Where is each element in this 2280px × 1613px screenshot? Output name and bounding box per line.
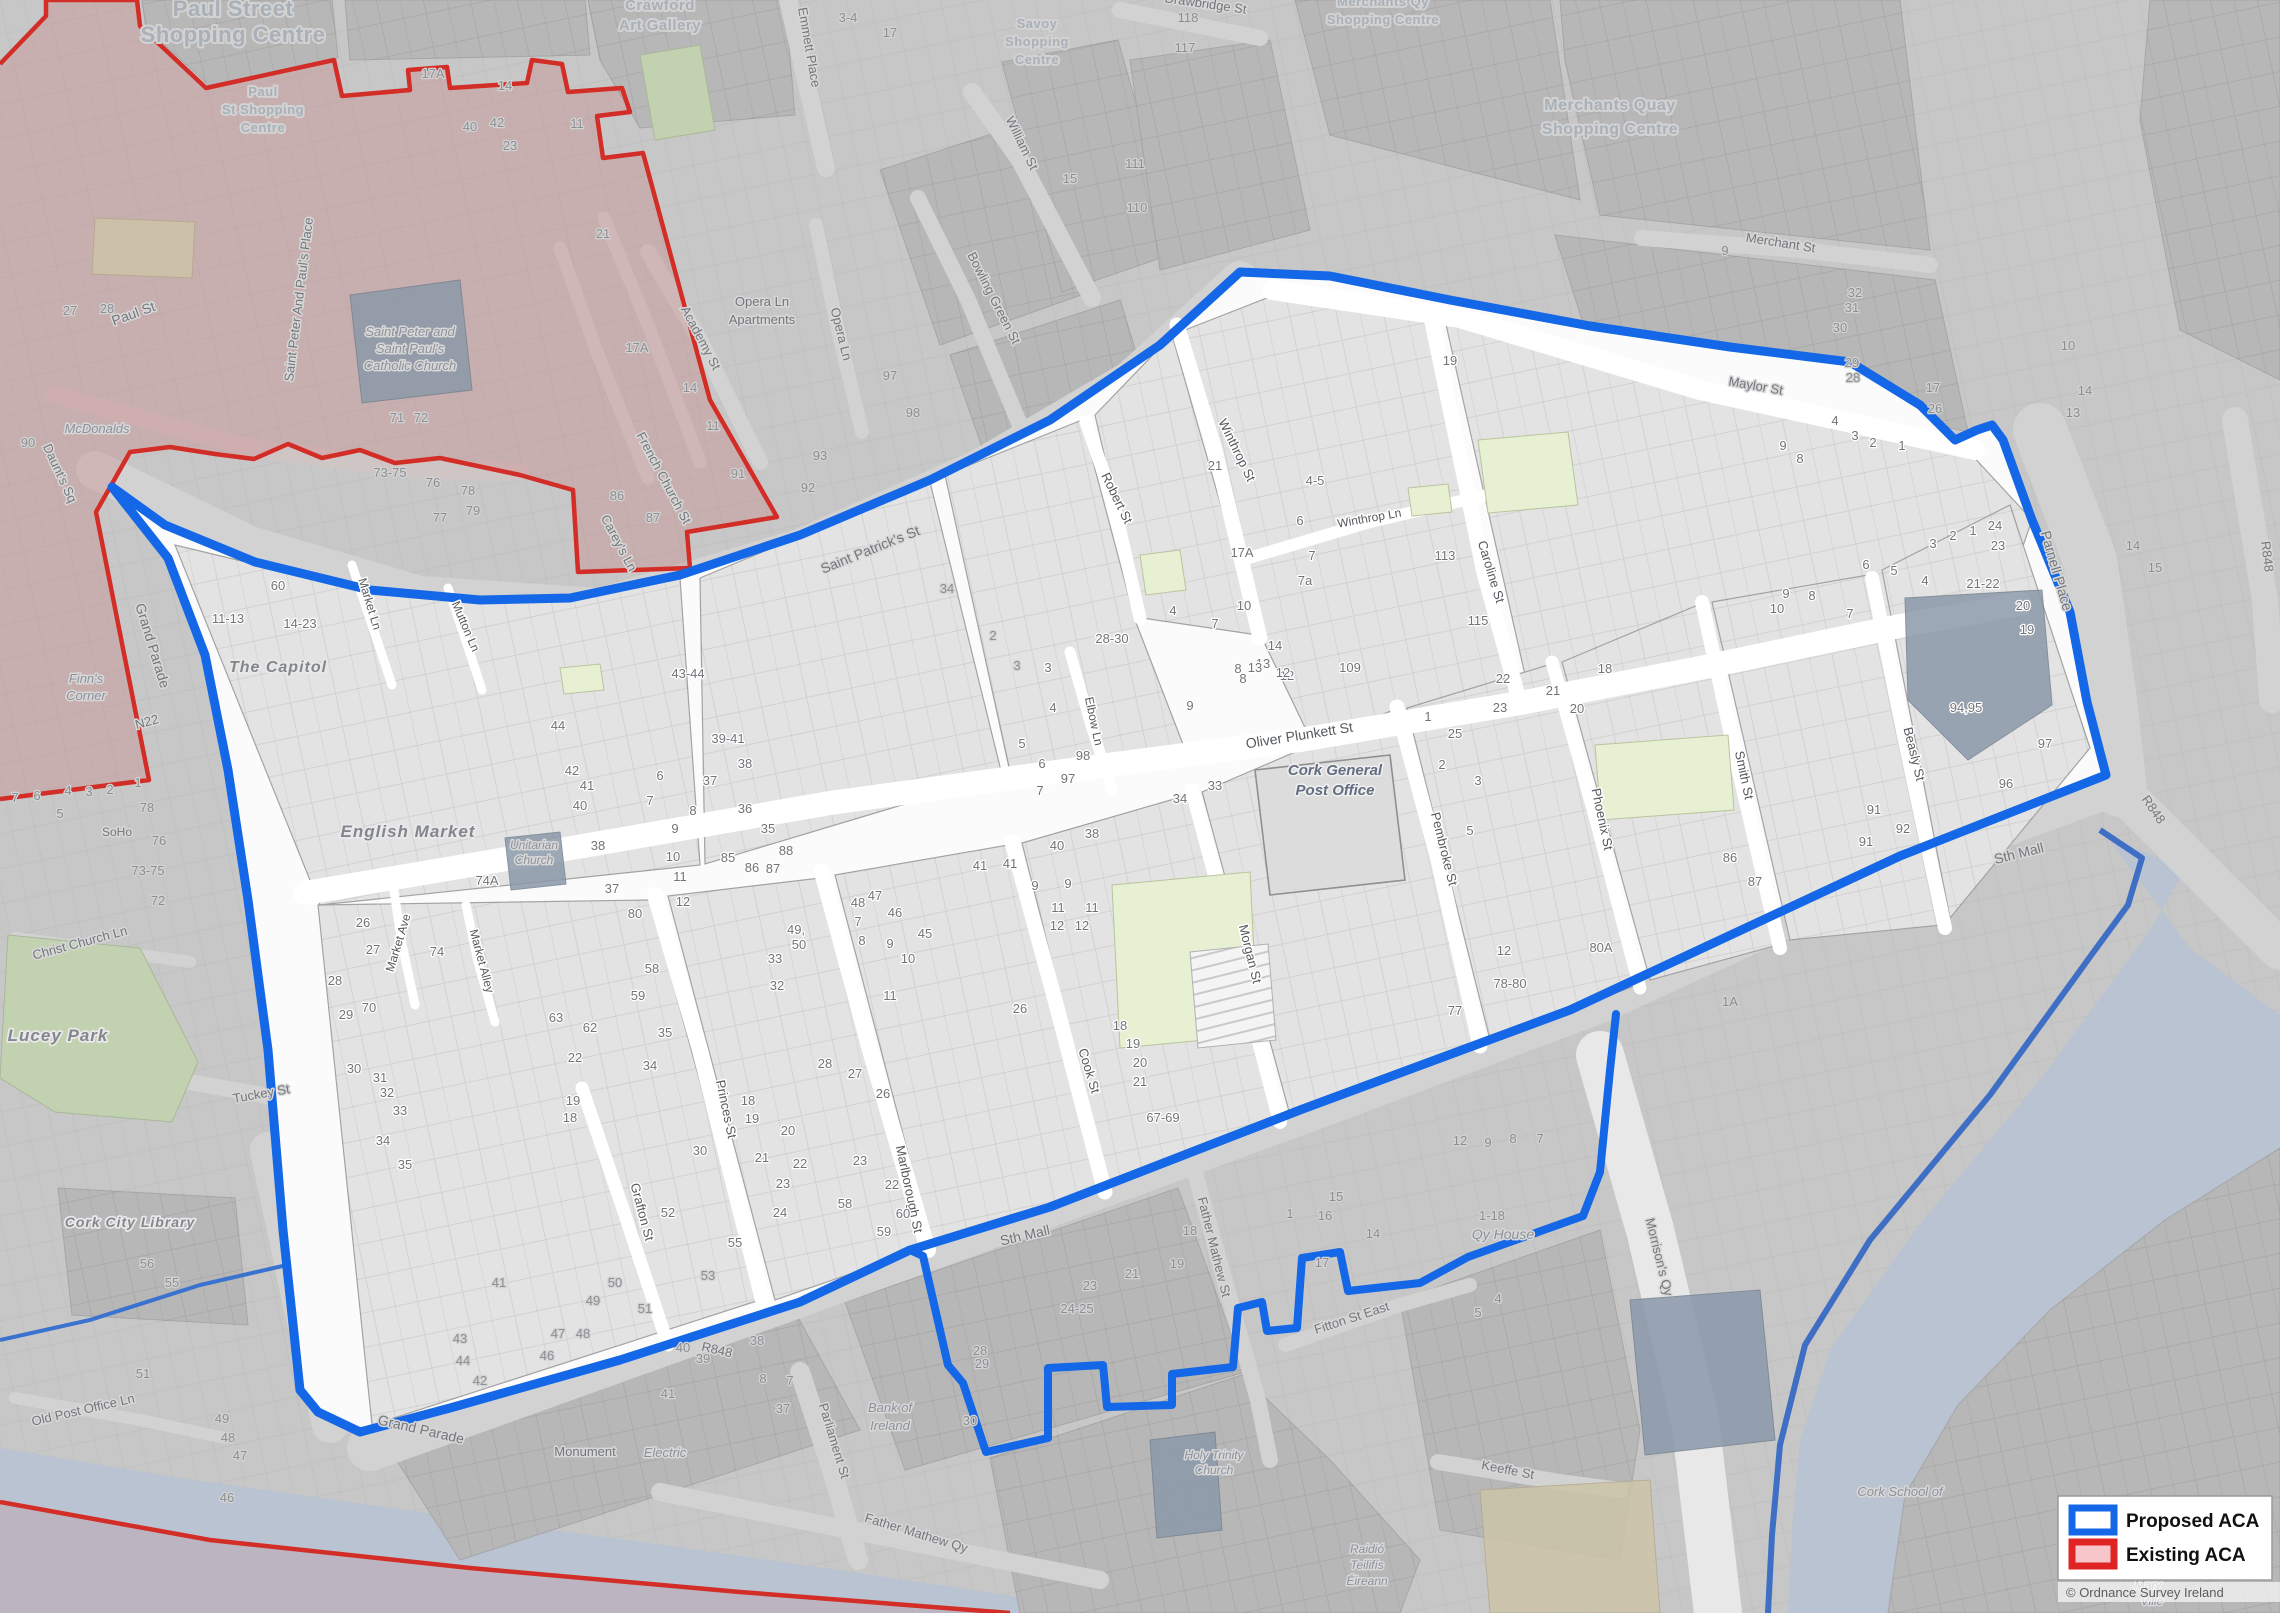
building-number: 11 (1051, 900, 1065, 915)
building-number: 24 (773, 1205, 787, 1220)
building-number: 67-69 (1146, 1110, 1179, 1125)
building-number: 74A (475, 873, 498, 888)
building-number: 1-18 (1479, 1208, 1505, 1223)
building-number: 50 (608, 1275, 622, 1290)
building-number: 19 (745, 1111, 759, 1126)
building-number: 38 (1085, 826, 1099, 841)
building-number: 87 (766, 861, 780, 876)
building-number: 6 (33, 788, 40, 803)
building-number: 22 (885, 1177, 899, 1192)
legend-label-proposed-aca: Proposed ACA (2126, 1511, 2260, 1532)
building-number: 11 (570, 116, 584, 131)
area-label: Shopping Centre (1327, 12, 1439, 27)
place-label: Teilifís (1350, 1558, 1384, 1572)
building-number: 21 (1546, 683, 1560, 698)
street-label: SoHo (102, 825, 132, 839)
building-number: 43-44 (671, 666, 704, 681)
building-number: 42 (490, 115, 504, 130)
building-number: 29 (1845, 355, 1859, 370)
building-number: 20 (1570, 701, 1584, 716)
building-number: 6 (656, 768, 663, 783)
building-number: 27 (366, 942, 380, 957)
building-number: 55 (165, 1275, 179, 1290)
building-number: 8 (1796, 451, 1803, 466)
building-number: 31 (1845, 300, 1859, 315)
place-label: Church (1195, 1463, 1234, 1477)
building-number: 19 (1170, 1256, 1184, 1271)
place-label: Cork City Library (65, 1214, 196, 1230)
building-number: 39-41 (711, 731, 744, 746)
building-number: 10 (2061, 338, 2075, 353)
building-number: 30 (693, 1143, 707, 1158)
building-number: 9 (1779, 438, 1786, 453)
building-number: 49 (215, 1411, 229, 1426)
building-number: 8 (1808, 588, 1815, 603)
building-number: 6 (1862, 557, 1869, 572)
building-number: 33 (1208, 778, 1222, 793)
building-number: 22 (568, 1050, 582, 1065)
building-number: 4 (1169, 603, 1176, 618)
building-number: 58 (645, 961, 659, 976)
building-number: 17A (1230, 545, 1253, 560)
building-number: 24-25 (1060, 1301, 1093, 1316)
area-label: Art Gallery (619, 17, 701, 34)
building-number: 76 (426, 475, 440, 490)
building-number: 60 (896, 1206, 910, 1221)
building-number: 6 (1038, 756, 1045, 771)
building-number: 97 (883, 368, 897, 383)
building-number: 29 (975, 1356, 989, 1371)
building-number: 41 (580, 778, 594, 793)
building-number: 17 (1315, 1255, 1329, 1270)
building-number: 2 (989, 628, 996, 643)
building-number: 28 (1846, 370, 1860, 385)
building-number: 5 (1466, 823, 1473, 838)
building-number: 43 (453, 1331, 467, 1346)
building-number: 88 (779, 843, 793, 858)
building-number: 25 (1448, 726, 1462, 741)
building-number: 2 (1869, 435, 1876, 450)
building-number: 77 (1448, 1003, 1462, 1018)
building-number: 21 (1125, 1266, 1139, 1281)
building-number: 24 (1988, 518, 2002, 533)
building-number: 50 (792, 937, 806, 952)
building-number: 10 (901, 951, 915, 966)
building-number: 77 (433, 510, 447, 525)
building-number: 14 (2126, 538, 2140, 553)
building-number: 9 (1064, 876, 1071, 891)
building-number: 1A (1722, 994, 1738, 1009)
building-number: 38 (591, 838, 605, 853)
building-number: 1 (1286, 1206, 1293, 1221)
building-number: 86 (1723, 850, 1737, 865)
building-number: 15 (1329, 1189, 1343, 1204)
building-number: 78-80 (1493, 976, 1526, 991)
building-number: 8 (759, 1371, 766, 1386)
building-number: 14 (498, 78, 512, 93)
building-number: 27 (848, 1066, 862, 1081)
building-number: 14 (1366, 1226, 1380, 1241)
building-number: 44 (551, 718, 565, 733)
building-number: 17A (421, 66, 444, 81)
building-number: 12 (1075, 918, 1089, 933)
building-number: 1 (134, 775, 141, 790)
building-number: 18 (741, 1093, 755, 1108)
building-number: 33 (768, 951, 782, 966)
building-number: 63 (549, 1010, 563, 1025)
area-label: Centre (1015, 52, 1059, 67)
legend-swatch-existing (2072, 1542, 2114, 1566)
building-number: 47 (551, 1326, 565, 1341)
building-number: 9 (886, 936, 893, 951)
building-number: 109 (1339, 660, 1361, 675)
building-number: 16 (1318, 1208, 1332, 1223)
place-label: English Market (341, 822, 476, 841)
building-number: 30 (963, 1413, 977, 1428)
building-number: 14 (683, 380, 697, 395)
building-number: 19 (1126, 1036, 1140, 1051)
building-number: 55 (728, 1235, 742, 1250)
building-number: 42 (473, 1373, 487, 1388)
building-number: 94,95 (1950, 700, 1983, 715)
building-number: 49, (787, 922, 805, 937)
building-number: 62 (583, 1020, 597, 1035)
building-number: 53 (701, 1268, 715, 1283)
building-number: 23 (776, 1176, 790, 1191)
building-number: 10 (1237, 598, 1251, 613)
building-number: 3 (1044, 660, 1051, 675)
building-number: 4-5 (1306, 473, 1325, 488)
building-number: 72 (414, 410, 428, 425)
building-number: 48 (851, 895, 865, 910)
building-number: 85 (721, 850, 735, 865)
building-number: 4 (1049, 700, 1056, 715)
building-number: 90 (21, 435, 35, 450)
building-number: 7 (786, 1373, 793, 1388)
building-number: 34 (940, 581, 954, 596)
area-label: Crawford (625, 0, 695, 14)
building-number: 11 (1085, 900, 1099, 915)
building-number: 32 (770, 978, 784, 993)
building-number: 92 (801, 480, 815, 495)
building-number: 70 (362, 1000, 376, 1015)
building-number: 20 (1133, 1055, 1147, 1070)
building-number: 46 (220, 1490, 234, 1505)
area-label: Shopping Centre (141, 22, 326, 47)
building-number: 92 (1896, 821, 1910, 836)
place-label: Church (515, 853, 554, 867)
area-label: Shopping (1005, 34, 1069, 49)
building-number: 19 (566, 1093, 580, 1108)
place-label: The Capitol (229, 659, 327, 676)
building-number: 38 (738, 756, 752, 771)
building-number: 111 (1125, 156, 1145, 171)
building-number: 14-23 (283, 616, 316, 631)
building-number: 46 (888, 905, 902, 920)
building-number: 117 (1175, 40, 1196, 55)
building-number: 11 (883, 988, 897, 1003)
area-label: Savoy (1017, 16, 1058, 31)
building-number: 4 (1831, 413, 1838, 428)
building-number: 14 (2078, 383, 2092, 398)
area-label: Shopping Centre (1542, 121, 1678, 138)
building-number: 35 (398, 1157, 412, 1172)
building-number: 12 (676, 894, 690, 909)
building-number: 7 (1036, 783, 1043, 798)
building-number: 1 (1424, 709, 1431, 724)
building-number: 98 (906, 405, 920, 420)
building-number: 113 (1435, 548, 1456, 563)
building-number: 20 (781, 1123, 795, 1138)
building-number: 46 (540, 1348, 554, 1363)
building-number: 18 (1598, 661, 1612, 676)
building-number: 58 (838, 1196, 852, 1211)
building-number: 21 (755, 1150, 769, 1165)
building-number: 44 (456, 1353, 470, 1368)
map-viewport: Paul StreetShopping CentrePaulSt Shoppin… (0, 0, 2280, 1613)
building-number: 71 (390, 410, 404, 425)
place-label: Saint Paul's (376, 341, 445, 356)
building-number: 28 (328, 973, 342, 988)
place-label: Catholic Church (364, 358, 457, 373)
building-number: 34 (1173, 791, 1187, 806)
building-number: 78 (140, 800, 154, 815)
building-number: 38 (750, 1333, 764, 1348)
building-number: 45 (918, 926, 932, 941)
building-number: 31 (373, 1070, 387, 1085)
building-number: 52 (661, 1205, 675, 1220)
building-number: 3-4 (839, 10, 858, 25)
building-number: 56 (140, 1256, 154, 1271)
building-number: 3 (1929, 536, 1936, 551)
building-number: 86 (745, 860, 759, 875)
building-number: 76 (152, 833, 166, 848)
building-number: 21 (596, 226, 610, 241)
building-number: 30 (1833, 320, 1847, 335)
building-number: 29 (339, 1007, 353, 1022)
building-number: 118 (1178, 10, 1199, 25)
building-number: 8 (1509, 1131, 1516, 1146)
building-number: 23 (1083, 1278, 1097, 1293)
area-label: Centre (241, 120, 285, 135)
building-number: 37 (703, 773, 717, 788)
building-number: 51 (136, 1366, 150, 1381)
building-number: 9 (1031, 878, 1038, 893)
building-number: 35 (761, 821, 775, 836)
building-number: 59 (877, 1224, 891, 1239)
building-number: 8 (858, 933, 865, 948)
building-number: 7 (1308, 548, 1315, 563)
street-label: Opera Ln (735, 294, 789, 309)
building-number: 11 (673, 869, 687, 884)
building-number: 2 (106, 782, 113, 797)
building-number: 23 (1991, 538, 2005, 553)
building-number: 8 (1234, 661, 1241, 676)
place-label: Éireann (1346, 1573, 1388, 1588)
place-label: Corner (66, 688, 106, 703)
building-number: 39 (696, 1351, 710, 1366)
building-number: 34 (643, 1058, 657, 1073)
building-number: 10 (666, 849, 680, 864)
building-number: 80 (628, 906, 642, 921)
building-number: 79 (466, 503, 480, 518)
building-number: 18 (1183, 1223, 1197, 1238)
building-number: 9 (1782, 586, 1789, 601)
building-number: 72 (151, 893, 165, 908)
building-number: 19 (1443, 353, 1457, 368)
building-number: 10 (1770, 601, 1784, 616)
building-number: 40 (573, 798, 587, 813)
building-number: 40 (1050, 838, 1064, 853)
building-number: 14 (1268, 638, 1282, 653)
building-number: 59 (631, 988, 645, 1003)
building-number: 4 (1494, 1291, 1501, 1306)
building-number: 19 (2020, 622, 2034, 637)
place-label: Bank of (868, 1400, 913, 1415)
building-number: 42 (565, 763, 579, 778)
map-legend: Proposed ACA Existing ACA © Ordnance Sur… (2058, 1496, 2280, 1602)
building-number: 26 (1013, 1001, 1027, 1016)
building-number: 7a (1298, 573, 1313, 588)
building-number: 13 (2066, 405, 2080, 420)
building-number: 28-30 (1095, 631, 1128, 646)
building-number: 17 (1926, 380, 1940, 395)
building-number: 32 (1848, 285, 1862, 300)
building-number: 20 (2016, 598, 2030, 613)
building-number: 21 (1208, 458, 1222, 473)
building-number: 2 (1438, 757, 1445, 772)
building-number: 3 (85, 784, 92, 799)
area-label: Merchants Qy (1337, 0, 1429, 9)
building-number: 37 (776, 1401, 790, 1416)
street-label: Monument (554, 1444, 616, 1459)
building-number: 18 (1113, 1018, 1127, 1033)
building-number: 47 (233, 1448, 247, 1463)
building-number: 9 (1484, 1135, 1491, 1150)
building-number: 23 (1493, 700, 1507, 715)
map-canvas: Paul StreetShopping CentrePaulSt Shoppin… (0, 0, 2280, 1613)
building-number: 40 (676, 1340, 690, 1355)
building-number: 13 (1248, 660, 1262, 675)
building-number: 5 (1890, 563, 1897, 578)
building-number: 3 (1013, 658, 1020, 673)
area-label: St Shopping (222, 102, 304, 117)
building-number: 22 (793, 1156, 807, 1171)
building-number: 115 (1468, 613, 1489, 628)
area-label: Paul Street (173, 0, 294, 21)
place-label: Unitarian (510, 838, 558, 852)
building-number: 110 (1127, 200, 1148, 215)
legend-swatch-proposed (2072, 1508, 2114, 1532)
building-number: 4 (1921, 573, 1928, 588)
building-number: 12 (1497, 943, 1511, 958)
building-number: 33 (393, 1103, 407, 1118)
building-number: 80A (1589, 940, 1612, 955)
building-number: 18 (563, 1110, 577, 1125)
building-number: 51 (638, 1301, 652, 1316)
building-number: 11-13 (212, 611, 244, 626)
building-number: 7 (854, 914, 861, 929)
area-label: Merchants Quay (1544, 97, 1675, 114)
building-number: 49 (586, 1293, 600, 1308)
building-number: 93 (813, 448, 827, 463)
area-label: Paul (248, 84, 277, 99)
building-number: 7 (646, 793, 653, 808)
building-number: 26 (876, 1086, 890, 1101)
place-label: Qy House (1472, 1226, 1534, 1242)
building-number: 41 (1003, 856, 1017, 871)
building-number: 4 (64, 783, 71, 798)
building-number: 26 (356, 915, 370, 930)
place-label: Raidió (1350, 1542, 1384, 1556)
place-label: Post Office (1296, 782, 1375, 799)
building-number: 8 (689, 803, 696, 818)
attribution-text: © Ordnance Survey Ireland (2066, 1585, 2224, 1600)
legend-label-existing-aca: Existing ACA (2126, 1545, 2246, 1566)
building-number: 2 (1949, 528, 1956, 543)
building-number: 5 (56, 806, 63, 821)
building-number: 37 (605, 881, 619, 896)
building-number: 98 (1076, 748, 1090, 763)
building-number: 47 (868, 888, 882, 903)
building-number: 11 (706, 418, 720, 433)
building-number: 7 (11, 790, 18, 805)
building-number: 97 (1061, 771, 1075, 786)
building-number: 17 (883, 25, 897, 40)
building-number: 1 (1969, 523, 1976, 538)
building-number: 60 (271, 578, 285, 593)
building-number: 15 (2148, 560, 2162, 575)
building-number: 22 (1496, 671, 1510, 686)
building-number: 30 (347, 1061, 361, 1076)
building-number: 41 (661, 1386, 675, 1401)
building-number: 12 (1050, 918, 1064, 933)
building-number: 21 (1133, 1074, 1147, 1089)
building-number: 5 (1018, 736, 1025, 751)
building-number: 74 (430, 944, 444, 959)
place-label: Electric (644, 1445, 687, 1460)
street-label: Apartments (729, 312, 796, 327)
place-label: Finn's (69, 671, 104, 686)
building-number: 91 (1859, 834, 1873, 849)
building-number: 48 (576, 1326, 590, 1341)
building-number: 97 (2038, 736, 2052, 751)
building-number: 23 (853, 1153, 867, 1168)
place-label: Cork School of (1857, 1484, 1944, 1499)
building-number: 28 (100, 301, 114, 316)
place-label: Lucey Park (8, 1026, 109, 1045)
building-number: 6 (1296, 513, 1303, 528)
building-number: 12 (1276, 665, 1290, 680)
building-number: 7 (1846, 606, 1853, 621)
building-number: 32 (380, 1085, 394, 1100)
building-number: 73-75 (373, 465, 406, 480)
building-number: 23 (503, 138, 517, 153)
building-number: 86 (610, 488, 624, 503)
place-label: Holy Trinity (1184, 1448, 1244, 1462)
building-number: 26 (1928, 401, 1942, 416)
building-number: 87 (1748, 874, 1762, 889)
building-number: 28 (818, 1056, 832, 1071)
place-label: McDonalds (64, 421, 130, 436)
building-number: 9 (671, 821, 678, 836)
building-number: 7 (1211, 616, 1218, 631)
building-number: 9 (1186, 698, 1193, 713)
building-number: 3 (1474, 773, 1481, 788)
building-number: 96 (1999, 776, 2013, 791)
building-number: 21-22 (1966, 576, 1999, 591)
building-number: 5 (1474, 1305, 1481, 1320)
